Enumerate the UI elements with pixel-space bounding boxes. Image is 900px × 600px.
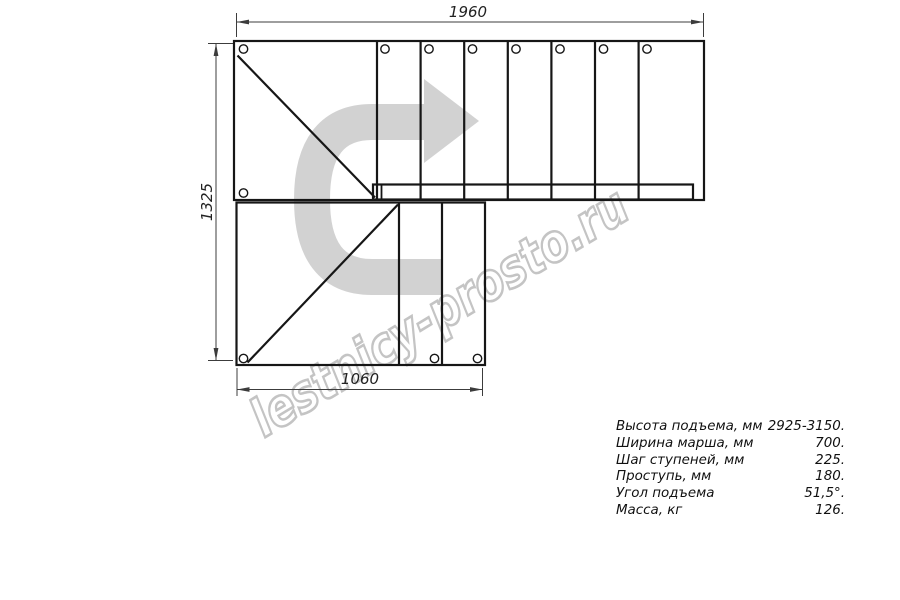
dimension-arrow-icon bbox=[214, 44, 219, 57]
screw-hole bbox=[430, 354, 438, 362]
spec-value: 126. bbox=[815, 503, 845, 520]
screw-hole bbox=[643, 45, 651, 53]
dimension-label-bottom: 1060 bbox=[341, 370, 379, 388]
spec-row: Угол подъема 51,5°. bbox=[616, 486, 845, 503]
spec-label: Масса, кг bbox=[616, 503, 682, 520]
screw-hole bbox=[468, 45, 476, 53]
spec-label: Проступь, мм bbox=[616, 469, 711, 486]
spec-label: Угол подъема bbox=[616, 486, 714, 503]
spec-row: Шаг ступеней, мм 225. bbox=[616, 453, 845, 470]
screw-hole bbox=[381, 45, 389, 53]
spec-value: 180. bbox=[815, 469, 845, 486]
dimensions bbox=[208, 13, 704, 396]
spec-value: 225. bbox=[815, 453, 845, 470]
dimension-arrow-icon bbox=[470, 387, 483, 392]
screw-hole bbox=[599, 45, 607, 53]
spec-label: Ширина марша, мм bbox=[616, 436, 753, 453]
spec-value: 2925-3150. bbox=[768, 419, 845, 436]
screw-hole bbox=[512, 45, 520, 53]
direction-arrow-head-icon bbox=[424, 79, 479, 163]
screw-hole bbox=[239, 189, 247, 197]
dimension-label-left: 1325 bbox=[198, 183, 216, 221]
screw-hole bbox=[425, 45, 433, 53]
spec-label: Высота подъема, мм bbox=[616, 419, 763, 436]
spec-row: Высота подъема, мм 2925-3150. bbox=[616, 419, 845, 436]
spec-value: 51,5°. bbox=[804, 486, 845, 503]
technical-drawing-canvas: lestnicy-prosto.ru bbox=[0, 0, 900, 600]
dimension-label-top: 1960 bbox=[449, 3, 487, 21]
spec-label: Шаг ступеней, мм bbox=[616, 453, 744, 470]
spec-row: Проступь, мм 180. bbox=[616, 469, 845, 486]
spec-row: Ширина марша, мм 700. bbox=[616, 436, 845, 453]
direction-arrow-watermark bbox=[312, 79, 479, 277]
spec-value: 700. bbox=[815, 436, 845, 453]
dimension-arrow-icon bbox=[237, 20, 250, 25]
screw-hole bbox=[473, 354, 481, 362]
dimension-arrow-icon bbox=[214, 348, 219, 361]
dimension-arrow-icon bbox=[691, 20, 704, 25]
screw-hole bbox=[556, 45, 564, 53]
dimension-arrow-icon bbox=[237, 387, 250, 392]
spec-table: Высота подъема, мм 2925-3150. Ширина мар… bbox=[616, 419, 845, 520]
screw-hole bbox=[239, 45, 247, 53]
spec-row: Масса, кг 126. bbox=[616, 503, 845, 520]
screw-hole bbox=[239, 354, 247, 362]
